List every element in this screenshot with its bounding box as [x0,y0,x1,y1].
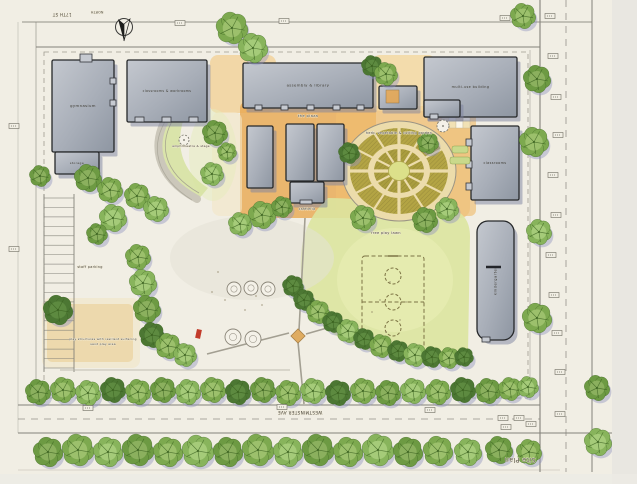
tree-trunk [261,214,263,216]
building-detail [189,117,198,122]
tree [393,437,424,469]
site-label: WESTMINSTER AVE [278,410,323,415]
tree [225,379,252,407]
tree-trunk [211,173,213,175]
tree [325,380,352,408]
tree [29,165,52,189]
tree [93,437,124,469]
tree-trunk [112,389,114,391]
tree-trunk [109,189,111,191]
building-detail [466,139,472,146]
tree-trunk [528,451,530,453]
tree [425,379,452,407]
tree-trunk [162,389,164,391]
tree-trunk [527,386,529,388]
tree [213,437,244,469]
tree-trunk [146,308,148,310]
tree-trunk [142,282,144,284]
tree-trunk [167,451,169,453]
tree-trunk [107,451,109,453]
tree-trunk [347,330,349,332]
tree-trunk [387,392,389,394]
tree-trunk [397,350,399,352]
building-label: gymnasium [70,103,96,108]
ground-dot [385,331,387,333]
tree-trunk [377,449,379,451]
tree-trunk [437,391,439,393]
tree-trunk [597,441,599,443]
building-label: multi-use building [452,85,490,89]
tree [175,379,202,407]
building-classroom-b [286,124,318,186]
tree-trunk [292,285,294,287]
tree [182,435,215,469]
site-label: amphitheatre & stage [172,144,210,148]
tree [302,434,335,468]
tree-trunk [237,391,239,393]
tree-trunk [137,449,139,451]
tree [510,3,537,31]
play-equipment [245,331,261,347]
site-label: sand play area [90,342,116,346]
tree [375,380,402,408]
building-detail [430,114,438,119]
tree-trunk [380,345,382,347]
tree-trunk [37,391,39,393]
tree-trunk [362,217,364,219]
tree-trunk [151,334,153,336]
paving-tile [449,121,456,128]
play-equipment [227,282,241,296]
building-gymnasium: gymnasium [52,60,118,157]
building-detail [255,105,262,110]
tree [454,438,483,468]
play-equipment [261,282,275,296]
tree-trunk [538,231,540,233]
planter-bed [452,146,468,153]
tree-trunk [509,388,511,390]
tree [62,434,95,468]
play-equipment [225,329,241,345]
tree-trunk [347,451,349,453]
building-connector [379,86,421,114]
tree [50,377,77,405]
ground-dot [244,309,246,311]
tree-trunk [227,451,229,453]
tree-trunk [96,233,98,235]
tree-trunk [362,390,364,392]
play-bench [195,329,202,339]
tree-trunk [596,387,598,389]
building-label: assembly & library [287,83,330,88]
tree [125,379,152,407]
tree-trunk [287,451,289,453]
ground-dot [389,281,391,283]
tree-trunk [522,15,524,17]
tree-trunk [498,449,500,451]
tree-trunk [214,132,216,134]
building-detail [135,117,144,122]
tree [125,244,152,272]
tree [519,127,550,159]
building-detail [300,200,312,204]
tree-trunk [39,175,41,177]
tree-trunk [87,177,89,179]
tree [150,377,177,405]
north-arrow-icon [116,19,133,42]
tree-trunk [57,309,59,311]
tree-trunk [252,47,254,49]
building-detail [162,117,171,122]
tree-trunk [317,449,319,451]
tree [400,378,427,406]
building-detail [357,105,364,110]
building-footprint [286,124,314,181]
site-label: herb, vegetable & cutting garden [366,131,432,135]
building-classrooms-west: classrooms & workrooms [127,60,211,127]
tree-trunk [281,206,283,208]
tree-trunk [112,217,114,219]
tree [242,434,275,468]
tree-trunk [412,390,414,392]
building-label: storage [70,161,84,165]
building-classroom-a [247,126,277,193]
tree [273,437,304,469]
tree [200,377,227,405]
tree-trunk [184,354,186,356]
site-label: cafeteria [299,207,316,211]
building-detail [110,78,116,84]
building-detail [281,105,288,110]
tree-trunk [187,391,189,393]
tree-trunk [437,450,439,452]
building-detail [333,105,340,110]
tree [122,434,155,468]
tree [33,437,64,469]
building-label: classrooms [484,161,507,165]
tree-trunk [536,317,538,319]
ground-dot [399,319,401,321]
planter-bed [450,157,470,164]
tree-trunk [462,389,464,391]
tree-trunk [77,449,79,451]
tree-trunk [348,152,350,154]
ground-dot [217,271,219,273]
tree-trunk [463,356,465,358]
tree-trunk [62,389,64,391]
tree-trunk [414,354,416,356]
site-label: the plaza [298,113,318,118]
site-label: NORTH [90,10,103,14]
tree [250,377,277,405]
tree-trunk [212,389,214,391]
tree-trunk [407,451,409,453]
building-detail [307,105,314,110]
ground-dot [405,301,407,303]
building-classrooms-east: classrooms [471,126,523,205]
play-equipment [244,281,258,295]
tree [25,379,52,407]
tree [523,65,552,95]
path-crossing [291,329,305,343]
tree-trunk [167,345,169,347]
tree-trunk [136,195,138,197]
tree-trunk [317,311,319,313]
tree [362,434,395,468]
tree-trunk [371,65,373,67]
ground-dot [255,295,257,297]
site-label: staff parking [77,265,102,269]
building-footprint [424,100,460,117]
site-label: play structures with resilient surfacing [69,337,137,341]
paving-tile [456,121,463,128]
tree [350,378,377,406]
ground-dot [261,304,263,306]
tree-trunk [87,392,89,394]
tree-trunk [257,449,259,451]
site-label: free play lawn [371,231,401,235]
paving-tile [463,121,470,128]
tree-trunk [467,451,469,453]
tree-trunk [137,256,139,258]
building-kindergarten: kindergarten [477,221,518,345]
tree [423,436,454,468]
tree [129,269,158,299]
tree-trunk [427,142,429,144]
tree-trunk [312,390,314,392]
ground-dot [224,299,226,301]
tree-trunk [47,451,49,453]
tree [475,378,502,406]
tree [450,377,477,405]
site-plan-drawing: Site Plan [0,0,637,484]
site-label: 17TH ST [52,12,71,17]
building-detail [482,337,490,342]
tree-trunk [226,151,228,153]
tree-trunk [424,219,426,221]
tree [584,375,611,403]
tree [522,303,553,335]
ground-dot [371,311,373,313]
building-label: classrooms & workrooms [143,89,192,93]
tree [275,380,302,408]
ground-dot [379,299,381,301]
tree-trunk [239,223,241,225]
tree [153,437,184,469]
tree-trunk [533,141,535,143]
scanned-site-plan: Site Plan [0,0,637,484]
building-footprint [247,126,273,188]
tree-trunk [337,392,339,394]
tree-trunk [448,357,450,359]
site-label: Site Plan [504,456,535,464]
tree [333,437,364,469]
tree-trunk [446,208,448,210]
ground-dot [211,291,213,293]
building-label: kindergarten [493,266,498,295]
tree-trunk [332,321,334,323]
tree [75,380,102,408]
tree-trunk [231,27,233,29]
tree-trunk [287,392,289,394]
tree-trunk [303,299,305,301]
tree-trunk [487,390,489,392]
building-detail [466,183,472,190]
tree [100,377,127,405]
garden-center [389,162,410,181]
tree-trunk [137,391,139,393]
tree-trunk [197,450,199,452]
tree-trunk [262,389,264,391]
tree-trunk [431,356,433,358]
tree-trunk [536,78,538,80]
tree-trunk [363,338,365,340]
connector-court [386,90,399,103]
building-detail [110,100,116,106]
tree-trunk [385,73,387,75]
tree-trunk [155,208,157,210]
building-detail [80,54,92,62]
